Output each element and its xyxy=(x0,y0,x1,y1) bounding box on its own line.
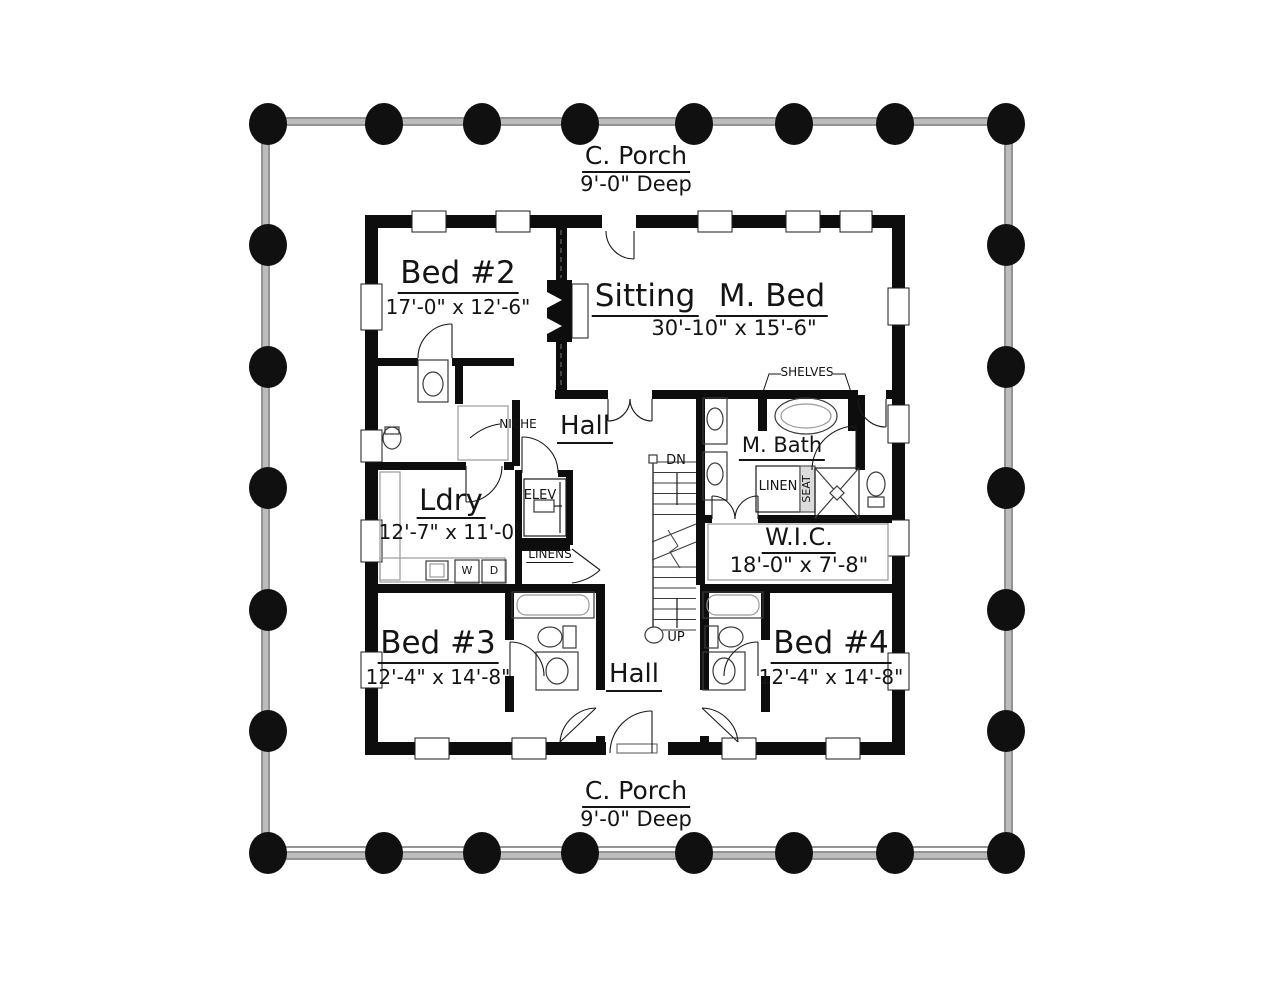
washer-label: W xyxy=(462,565,473,577)
toilet xyxy=(563,626,576,648)
room-label-wic: W.I.C. 18'-0" x 7'-8" xyxy=(730,524,869,577)
toilet xyxy=(867,472,885,496)
porch-column xyxy=(987,832,1025,874)
porch-column xyxy=(249,346,287,388)
porch-column xyxy=(675,832,713,874)
bed3-name: Bed #3 xyxy=(377,626,499,664)
linens-label: LINENS xyxy=(526,548,573,563)
room-label-bed3: Bed #3 12'-4" x 14'-8" xyxy=(366,626,511,688)
porch-column xyxy=(249,710,287,752)
porch-column xyxy=(561,832,599,874)
hall-upper-name: Hall xyxy=(557,412,613,444)
porch-column xyxy=(249,832,287,874)
seat-label: SEAT xyxy=(801,475,813,502)
sink xyxy=(383,427,401,449)
porch-column xyxy=(987,467,1025,509)
porch-bottom-title: C. Porch xyxy=(582,777,690,808)
bed2-name: Bed #2 xyxy=(397,256,519,294)
ldry-name: Ldry xyxy=(416,484,486,519)
porch-label-top: C. Porch 9'-0" Deep xyxy=(580,142,692,197)
fireplace xyxy=(547,230,588,388)
room-label-mbath: M. Bath xyxy=(739,434,825,461)
porch-column xyxy=(987,103,1025,145)
bed2-dims: 17'-0" x 12'-6" xyxy=(386,296,531,318)
porch-column xyxy=(249,224,287,266)
porch-column xyxy=(365,832,403,874)
bed3-dims: 12'-4" x 14'-8" xyxy=(366,666,511,688)
porch-label-bottom: C. Porch 9'-0" Deep xyxy=(580,777,692,832)
bed4-dims: 12'-4" x 14'-8" xyxy=(759,666,904,688)
stairs-up-label: UP xyxy=(667,631,684,646)
hall-lower-name: Hall xyxy=(606,660,662,692)
bed4-name: Bed #4 xyxy=(770,626,892,664)
mbed-name: M. Bed xyxy=(716,279,828,317)
porch-column xyxy=(775,103,813,145)
dryer-label: D xyxy=(490,565,498,577)
wic-dims: 18'-0" x 7'-8" xyxy=(730,554,869,578)
ldry-dims: 12'-7" x 11'-0" xyxy=(379,521,524,543)
porch-column xyxy=(561,103,599,145)
room-label-hall-upper: Hall xyxy=(557,412,613,444)
stairs-dn-label: DN xyxy=(666,454,686,469)
sitting-name: Sitting xyxy=(592,279,699,317)
linen-label: LINEN xyxy=(759,480,798,495)
porch-column xyxy=(365,103,403,145)
elev-label: ELEV xyxy=(524,489,557,504)
porch-column xyxy=(249,103,287,145)
tub xyxy=(512,592,594,618)
porch-column xyxy=(876,832,914,874)
room-label-bed4: Bed #4 12'-4" x 14'-8" xyxy=(759,626,904,688)
porch-column xyxy=(775,832,813,874)
porch-column xyxy=(876,103,914,145)
room-label-bed2: Bed #2 17'-0" x 12'-6" xyxy=(386,256,531,318)
porch-top-depth: 9'-0" Deep xyxy=(580,173,692,197)
mbath-name: M. Bath xyxy=(739,434,825,461)
sitting-mbed-dims: 30'-10" x 15'-6" xyxy=(651,317,816,341)
floor-plan-page: C. Porch 9'-0" Deep C. Porch 9'-0" Deep … xyxy=(0,0,1280,989)
porch-column xyxy=(987,589,1025,631)
porch-top-title: C. Porch xyxy=(582,142,690,173)
room-label-sitting: Sitting xyxy=(592,279,699,317)
porch-bottom-depth: 9'-0" Deep xyxy=(580,808,692,832)
porch-column xyxy=(987,224,1025,266)
porch-column xyxy=(987,346,1025,388)
staircase xyxy=(645,455,696,643)
room-label-mbed: M. Bed xyxy=(716,279,828,317)
wic-name: W.I.C. xyxy=(762,524,836,554)
porch-column xyxy=(463,832,501,874)
niche-label: NICHE xyxy=(499,418,537,431)
porch-column xyxy=(675,103,713,145)
room-label-hall-lower: Hall xyxy=(606,660,662,692)
porch-column xyxy=(249,467,287,509)
room-label-ldry: Ldry 12'-7" x 11'-0" xyxy=(379,484,524,544)
shelves-label: SHELVES xyxy=(781,366,834,379)
porch-column xyxy=(987,710,1025,752)
porch-column xyxy=(249,589,287,631)
porch-column xyxy=(463,103,501,145)
